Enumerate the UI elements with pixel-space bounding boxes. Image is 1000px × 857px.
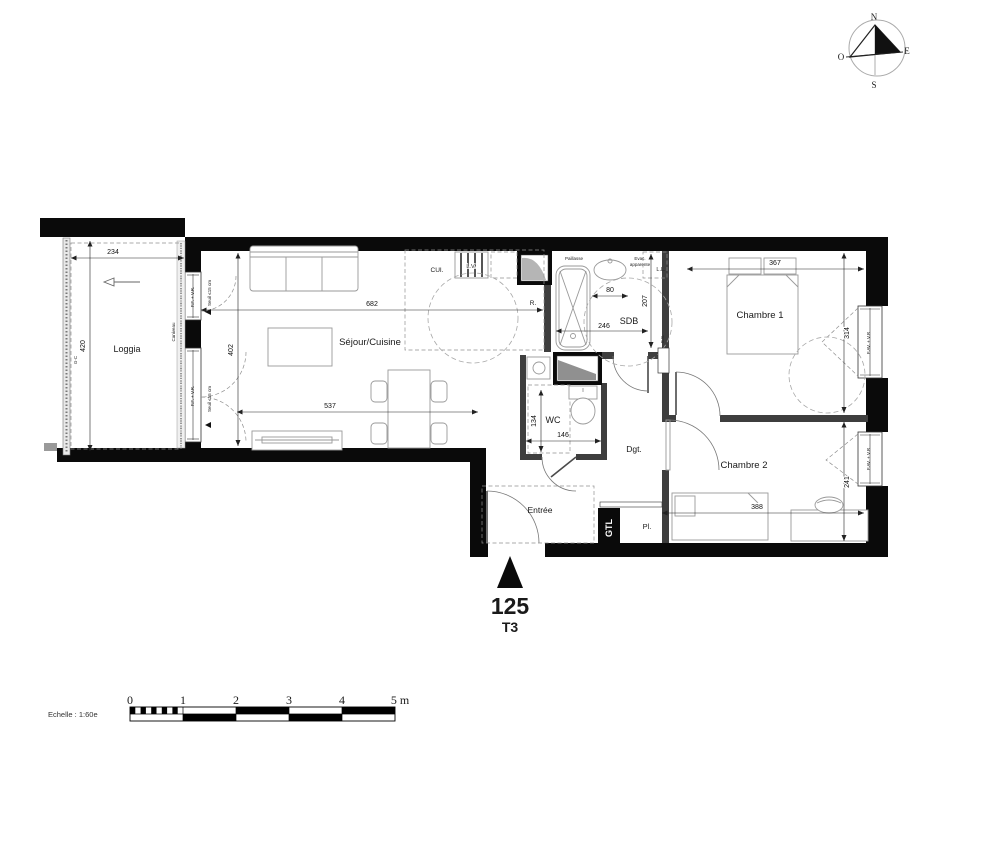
scale-tick-5: 5 m [391, 693, 410, 707]
scale-tick-2: 2 [233, 693, 239, 707]
chambre2-furniture [672, 493, 868, 541]
caniveau-label: Caniveau [171, 322, 176, 342]
dim-chambre2-width: 388 [751, 504, 763, 511]
dim-chambre1-height: 314 [844, 327, 851, 339]
scale-tick-0: 0 [127, 693, 133, 707]
compass-east: E [904, 46, 910, 56]
floor-plan-page: GTL [0, 0, 1000, 857]
seuil-arrow-2 [205, 422, 211, 428]
wc-label: WC [546, 415, 561, 425]
wall-bottom-right [545, 543, 888, 557]
dim-sejour-height: 402 [228, 344, 235, 356]
paillasse-label: Paillasse [565, 256, 584, 261]
dim-loggia-height: 420 [80, 340, 87, 352]
scale-bar: Echelle : 1:60e 0 1 2 3 4 5 m [48, 693, 410, 721]
desk [791, 497, 868, 541]
entrance-arrow-icon [497, 556, 523, 588]
evac-label-line1: Evac. [634, 256, 645, 261]
kitchen-sink [491, 252, 517, 278]
wall-wc-west [520, 355, 526, 460]
entrance-door [487, 491, 539, 543]
refrigerateur-label: R. [530, 300, 537, 307]
chambre1-label: Chambre 1 [737, 310, 784, 321]
dim-loggia-width: 234 [107, 249, 119, 256]
garde-corps-label: G-C [73, 355, 78, 364]
slope-arrow-icon [104, 278, 140, 286]
sdb-door [613, 356, 648, 393]
unit-number: 125 [491, 593, 530, 619]
wall-sdb-south-left [602, 352, 614, 359]
scale-tick-4: 4 [339, 693, 345, 707]
scale-label: Echelle : 1:60e [48, 710, 98, 719]
scale-tick-1: 1 [180, 693, 186, 707]
unit-type: T3 [502, 619, 519, 635]
compass-north: N [871, 12, 878, 22]
dim-chambre2-height: 241 [844, 476, 851, 488]
dim-sejour-width: 682 [366, 301, 378, 308]
wall-chambre2-west [662, 470, 669, 543]
chambre2-door [666, 420, 719, 470]
chambre1-door [676, 372, 720, 416]
washbasin [594, 259, 626, 280]
fav-vr-label-1: F.AV. + V.R [866, 331, 871, 354]
dim-wc-width: 146 [557, 432, 569, 439]
fav-vr-label-2: F.AV. + V.R [866, 447, 871, 470]
placard-shelf [600, 502, 662, 507]
floor-plan-drawing: GTL [0, 0, 1000, 857]
sofa [250, 246, 358, 291]
degagement-label: Dgt. [626, 444, 642, 454]
seche-serviettes-label: S.S. [660, 335, 665, 344]
loggia-label: Loggia [113, 344, 140, 354]
lave-vaisselle-label: L.V. [466, 264, 476, 270]
sdb-label: SDB [620, 316, 639, 326]
wall-wc-south-right [576, 454, 607, 460]
wall-top-left-band [40, 218, 185, 237]
single-bed [672, 493, 768, 540]
turning-circle-sejour [428, 273, 518, 363]
wall-loggia-bottom [57, 448, 186, 462]
window-chambre2-swing [826, 434, 858, 484]
scale-tick-3: 3 [286, 693, 292, 707]
seuil-label-1: Seuil ≤15 cm [207, 280, 212, 306]
wall-pier-bottom [185, 442, 201, 462]
wall-pier-top [185, 237, 201, 272]
entree-label: Entrée [527, 505, 552, 515]
wall-pier-mid [185, 320, 201, 348]
wall-wc-south-left [520, 454, 542, 460]
wall-chambre-divider-right [720, 415, 868, 422]
placard-label: Pl. [643, 522, 652, 531]
unit-marker: 125 T3 [491, 556, 530, 635]
window-chambre1-swing [822, 308, 858, 376]
turning-circle-chambre1 [789, 337, 865, 413]
pf-vr-label-2: P.F. + V.R. [190, 386, 195, 407]
wall-entree-west [470, 448, 486, 557]
toilet [569, 386, 597, 424]
hand-basin [527, 357, 550, 379]
lave-linge-label: L.L. [656, 267, 666, 273]
seuil-label-2: Seuil ≤15 cm [207, 386, 212, 412]
sejour-furniture [250, 246, 447, 450]
wall-right-upper [866, 237, 888, 306]
dim-wc-height: 134 [531, 415, 538, 427]
compass-south: S [871, 80, 876, 90]
wall-wc-east [601, 383, 607, 460]
dim-chambre1-width: 367 [769, 260, 781, 267]
dim-sejour-width2: 537 [324, 403, 336, 410]
compass-west: O [838, 52, 845, 62]
wall-right-middle [866, 378, 888, 432]
dim-sdb-height: 207 [642, 295, 649, 307]
loggia-drain-stub [44, 443, 57, 451]
coffee-table [268, 328, 332, 366]
pf-vr-label-1: P.F. + V.R. [190, 287, 195, 308]
bathtub [556, 266, 590, 350]
dim-sdb-width: 246 [598, 323, 610, 330]
cuisine-label: CUI. [431, 267, 444, 274]
compass-rose: N S O E [838, 12, 911, 90]
chambre2-label: Chambre 2 [721, 460, 768, 471]
sejour-label: Séjour/Cuisine [339, 337, 401, 348]
towel-dryer [658, 348, 669, 373]
tv-sideboard [252, 431, 342, 450]
wall-chambre-divider-left [662, 415, 676, 422]
gtl-label: GTL [604, 519, 614, 537]
dining-table [371, 370, 447, 448]
double-bed [727, 258, 798, 354]
dim-sdb-niche: 80 [606, 287, 614, 294]
evac-label-line2: apparente [630, 262, 651, 267]
